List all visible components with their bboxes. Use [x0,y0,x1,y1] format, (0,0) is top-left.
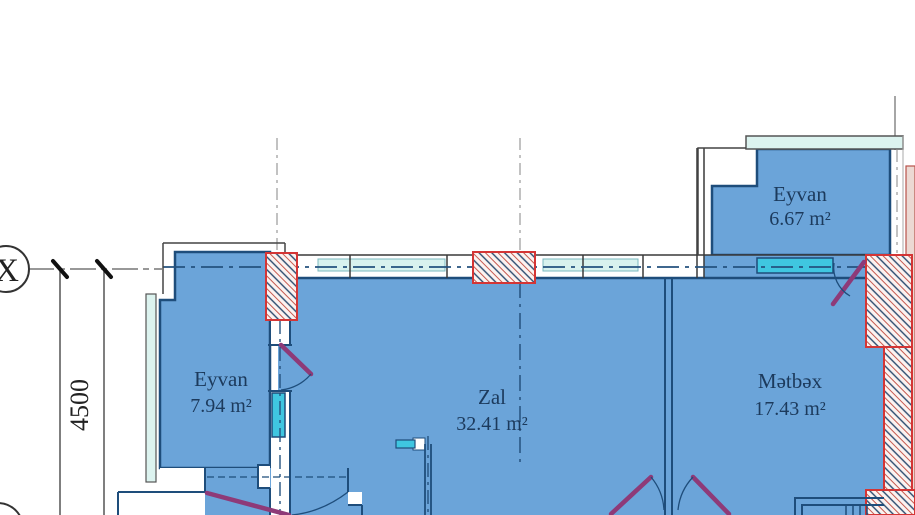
room-eyvan-left-floor [160,252,270,468]
dimension-group: 4500 X [0,246,163,515]
column-hatch [473,252,535,283]
window-bright [396,440,415,448]
room-label-zal: Zal [478,385,506,409]
wall-hatch-right-lower [884,347,912,490]
axis-marker-label: X [0,253,19,289]
window-bright [757,258,833,273]
wall-hatch-right-bottom [866,490,915,515]
room-area-zal: 32.41 m² [456,413,528,435]
room-metbex-floor [668,278,890,515]
window-strip [318,259,445,271]
wall-hatch-right-upper [866,255,912,347]
room-area-metbex: 17.43 m² [754,398,826,420]
wall-segment [160,468,205,492]
wall-step [348,492,362,505]
balcony-window-rail [746,136,903,149]
column-hatch [266,253,297,320]
floor-plan-page: Eyvan 6.67 m² Eyvan 7.94 m² [0,0,915,515]
window-bright [272,393,285,437]
axis-marker-circle-bottom [0,503,23,515]
room-area-eyvan-left: 7.94 m² [190,395,252,417]
room-area-eyvan-top: 6.67 m² [769,208,831,230]
floor-plan-canvas: Eyvan 6.67 m² Eyvan 7.94 m² [0,0,915,515]
room-label-eyvan-top: Eyvan [773,182,827,206]
room-label-eyvan-left: Eyvan [194,367,248,391]
dimension-value: 4500 [65,379,94,431]
balcony-left-window-rail [146,294,156,482]
window-strip [543,259,638,271]
room-label-metbex: Mətbəx [758,369,823,393]
